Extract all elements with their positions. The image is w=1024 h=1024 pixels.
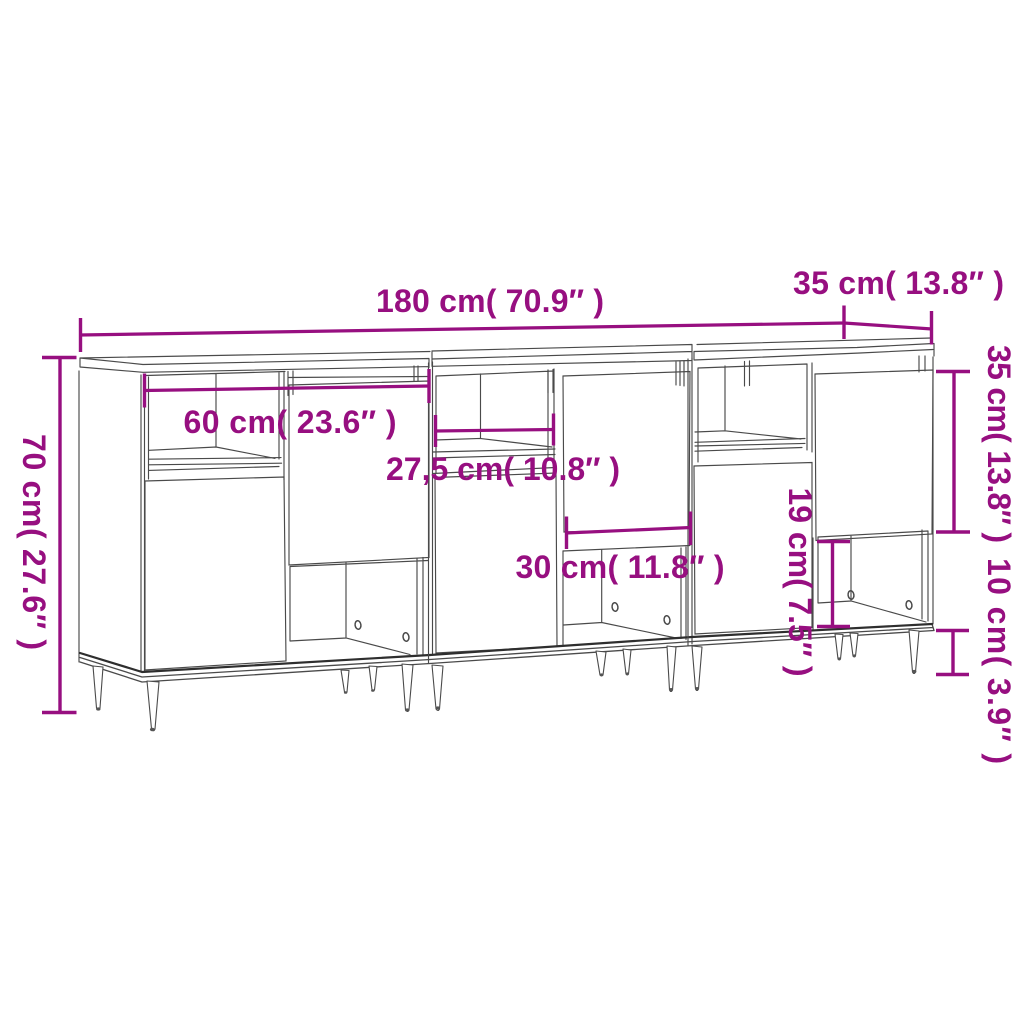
svg-text:19 cm( 7.5″ ): 19 cm( 7.5″ ): [782, 488, 818, 677]
svg-text:30 cm( 11.8″ ): 30 cm( 11.8″ ): [516, 549, 725, 585]
svg-text:180 cm( 70.9″ ): 180 cm( 70.9″ ): [376, 283, 604, 319]
svg-text:60 cm( 23.6″ ): 60 cm( 23.6″ ): [184, 404, 397, 440]
svg-text:35 cm( 13.8″ ): 35 cm( 13.8″ ): [981, 345, 1017, 543]
svg-text:70 cm( 27.6″ ): 70 cm( 27.6″ ): [16, 434, 52, 650]
svg-text:10 cm( 3.9″ ): 10 cm( 3.9″ ): [981, 558, 1017, 764]
svg-text:35 cm( 13.8″ ): 35 cm( 13.8″ ): [793, 265, 1004, 301]
svg-text:27,5 cm( 10.8″ ): 27,5 cm( 10.8″ ): [386, 451, 620, 487]
